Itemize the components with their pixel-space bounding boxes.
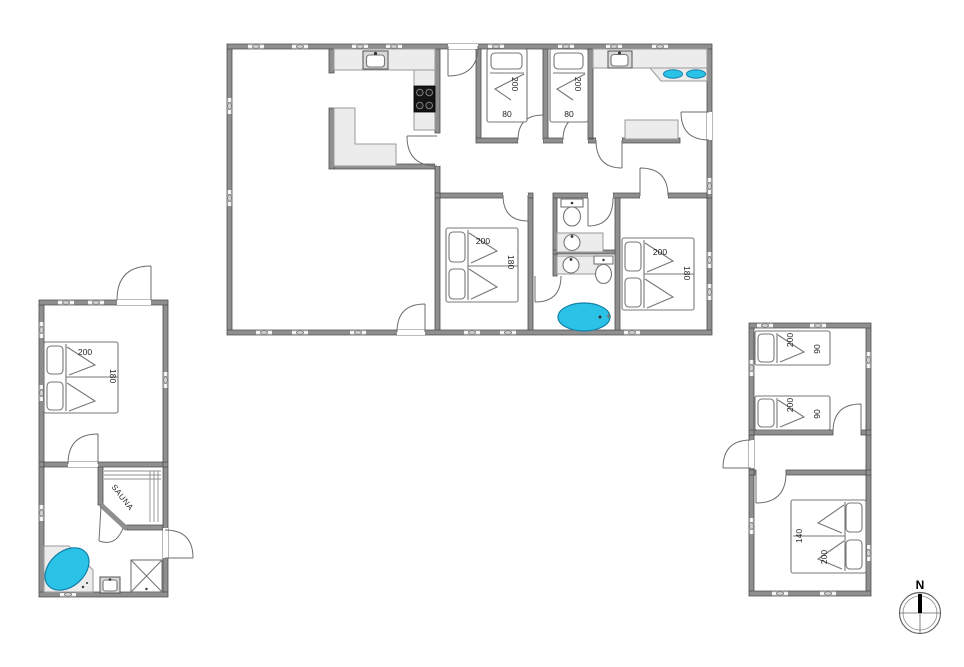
window: [500, 330, 516, 335]
washbasin-icon: [557, 233, 603, 252]
compass-north-label: N: [916, 578, 925, 592]
bedroom-d-door: [640, 168, 668, 196]
window: [88, 300, 104, 305]
window: [227, 98, 232, 114]
bed-single-annex2-2: 200 90: [755, 396, 830, 430]
kitchen: [334, 49, 435, 166]
pillow: [554, 53, 583, 69]
window: [810, 323, 826, 328]
bed-width-label: 180: [682, 266, 692, 280]
annex-entry-door-top: [117, 266, 151, 300]
bed-width-label: 80: [564, 109, 574, 119]
floor-plan-page: 200 80 200 80 200 180: [0, 0, 964, 667]
bathroom-lower: [557, 256, 613, 331]
pillow: [449, 269, 465, 299]
window: [292, 330, 308, 335]
bed-width-label: 180: [108, 369, 118, 383]
corner-bathtub-icon: [37, 539, 98, 598]
bed-single-annex2-1: 200 90: [755, 331, 830, 365]
compass-icon: N: [900, 578, 941, 634]
bed-width-label: 90: [812, 409, 822, 419]
hob-icon: [650, 68, 707, 81]
window: [386, 44, 402, 49]
window: [707, 252, 712, 268]
window: [256, 330, 272, 335]
bed-length-label: 200: [785, 398, 795, 412]
annex-bedroom-door: [68, 434, 98, 464]
annex-bathroom: [37, 539, 162, 598]
window: [866, 545, 871, 561]
left-annex: 200 180 SAUNA: [37, 266, 193, 599]
window: [292, 44, 308, 49]
toilet-icon: [561, 199, 583, 226]
bed-single-b: 200 80: [550, 49, 588, 122]
bedroom-c-door: [503, 195, 528, 221]
bed-length-label: 200: [476, 236, 490, 246]
window: [227, 190, 232, 206]
sauna-label: SAUNA: [109, 483, 135, 513]
window: [60, 592, 76, 597]
pillow: [758, 334, 774, 362]
window: [350, 330, 366, 335]
utility-room: [593, 49, 707, 139]
window: [749, 518, 754, 534]
pillow: [47, 382, 63, 410]
utility-sink-icon: [608, 51, 632, 68]
sauna-corner-wall: [101, 505, 127, 529]
bed-double-d: 200 180: [622, 238, 694, 310]
right-annex: 200 90 200 90 140 200: [723, 323, 871, 596]
window: [772, 591, 788, 596]
pillow: [449, 232, 465, 262]
bed-length-label: 200: [785, 333, 795, 347]
stove-icon: [414, 86, 435, 112]
bed-length-label: 200: [573, 77, 583, 91]
window: [624, 330, 640, 335]
window: [163, 372, 168, 388]
pillow: [846, 503, 862, 532]
bed-width-label: 90: [812, 344, 822, 354]
floor-plan: 200 80 200 80 200 180: [0, 0, 964, 667]
window: [558, 44, 574, 49]
bed-double-annex2: 140 200: [791, 500, 866, 573]
bed-double-c: 200 180: [446, 228, 518, 302]
entry-door: [448, 46, 478, 76]
bed-length-label: 200: [653, 247, 667, 257]
shower-icon: [131, 560, 162, 592]
window: [352, 44, 368, 49]
window: [606, 44, 622, 49]
window: [58, 300, 74, 305]
bed-length-label: 200: [819, 550, 829, 564]
bathtub-icon: [558, 303, 611, 331]
bathroom-top-door: [588, 198, 613, 226]
bed-width-label: 140: [794, 529, 804, 543]
window: [707, 178, 712, 194]
hob-plate: [664, 70, 683, 78]
washbasin-icon: [100, 577, 120, 593]
utility-exterior-door: [681, 112, 709, 140]
pillow: [491, 53, 522, 69]
pillow: [758, 399, 774, 427]
window: [866, 352, 871, 368]
pillow: [846, 540, 862, 569]
window: [39, 322, 44, 338]
annex2-bedroom-top-door: [833, 404, 861, 432]
bed-single-a: 200 80: [487, 49, 527, 122]
hob-plate: [687, 70, 706, 78]
bed-width-label: 180: [506, 255, 516, 269]
window: [248, 44, 264, 49]
window: [39, 505, 44, 521]
window: [652, 44, 668, 49]
toilet-icon: [594, 256, 613, 284]
pillow: [625, 278, 641, 307]
bed-width-label: 80: [502, 109, 512, 119]
bed-double-annex: 200 180: [44, 342, 118, 413]
window: [464, 330, 480, 335]
window: [488, 44, 504, 49]
window: [39, 385, 44, 401]
utility-hall-door: [596, 140, 622, 168]
window: [757, 323, 773, 328]
pillow: [47, 346, 63, 374]
pillow: [625, 242, 641, 271]
living-room-door: [407, 136, 437, 166]
bed-length-label: 200: [510, 77, 520, 91]
bathroom-lower-door: [535, 276, 561, 302]
washbasin-icon: [557, 256, 598, 274]
bed-length-label: 200: [78, 347, 92, 357]
right-annex-door-gaps: [749, 440, 754, 468]
main-building: 200 80 200 80 200 180: [227, 44, 712, 335]
annex-entry-door-east: [165, 530, 193, 558]
terrace-door: [397, 304, 425, 332]
kitchen-island: [334, 108, 396, 166]
utility-table: [625, 120, 678, 139]
window: [820, 591, 836, 596]
kitchen-sink-icon: [363, 51, 388, 69]
annex2-bedroom-bottom-door: [756, 473, 786, 503]
annex2-entry-door: [723, 440, 751, 468]
window: [707, 284, 712, 300]
window: [749, 360, 754, 376]
